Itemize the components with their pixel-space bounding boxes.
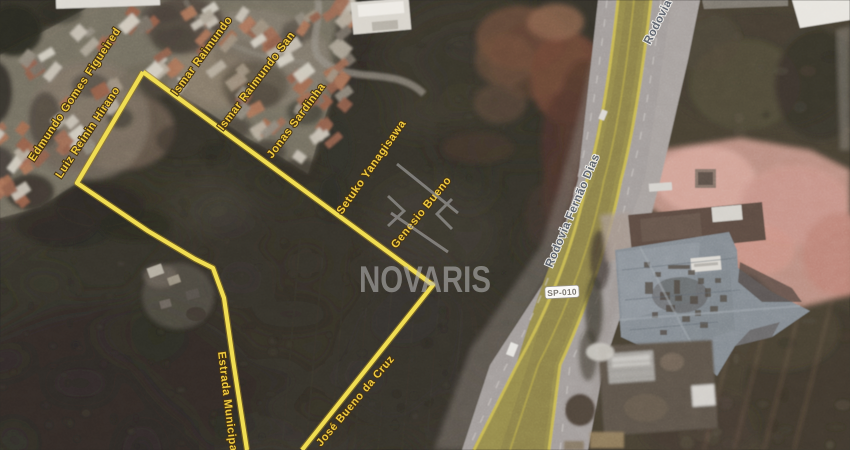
svg-text:SP-010: SP-010 [547,287,577,299]
svg-text:NOVARIS: NOVARIS [359,259,491,300]
